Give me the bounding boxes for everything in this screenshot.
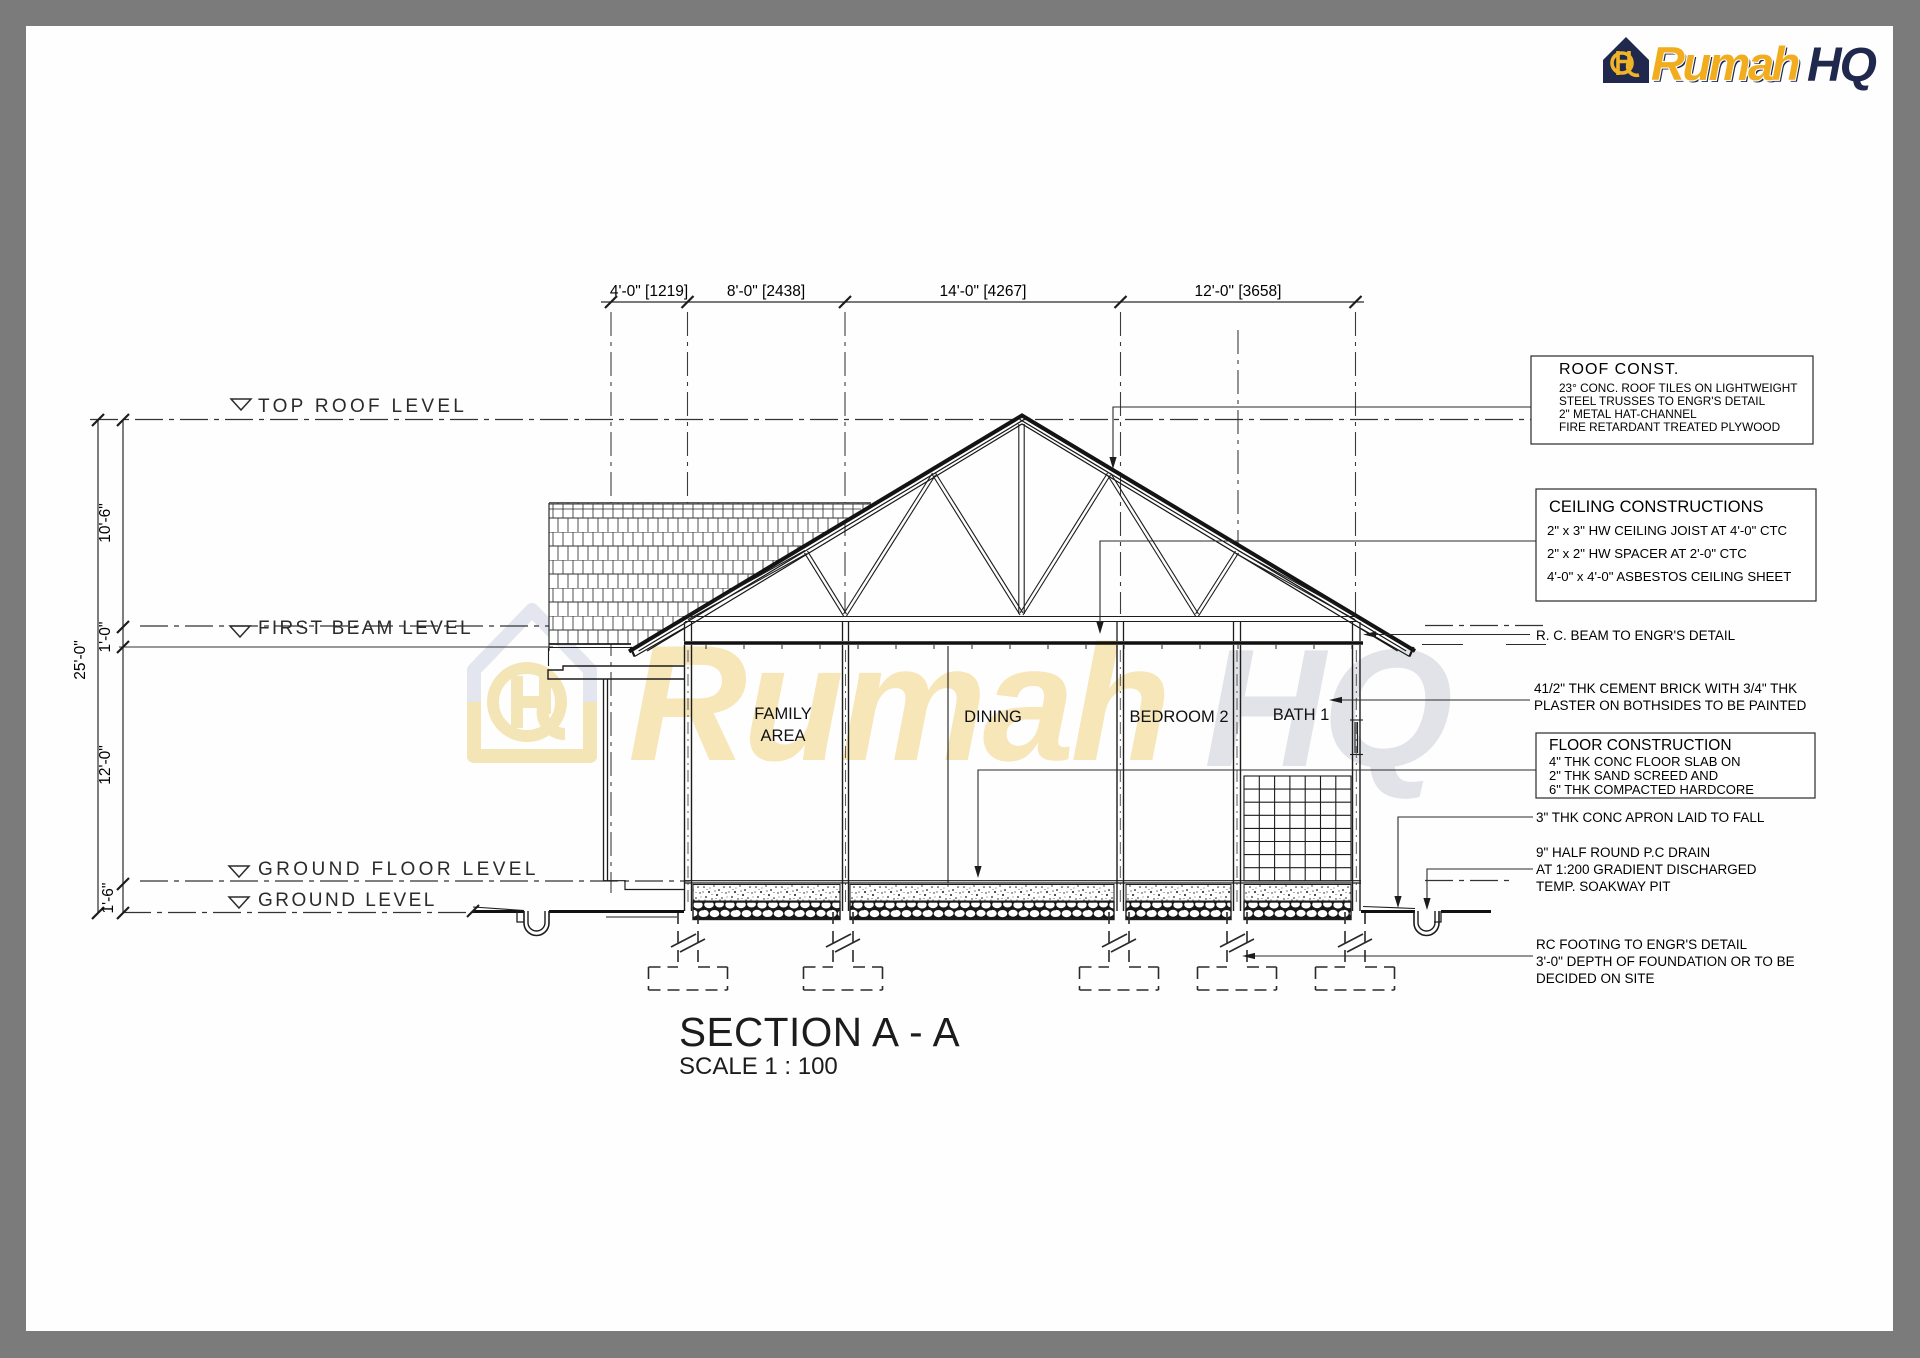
svg-text:1'-0": 1'-0" [97,622,114,653]
svg-text:10'-6": 10'-6" [97,503,114,542]
svg-text:SCALE 1 : 100: SCALE 1 : 100 [679,1053,838,1080]
svg-text:Rumah: Rumah [1651,37,1799,90]
svg-text:3" THK CONC APRON LAID TO FALL: 3" THK CONC APRON LAID TO FALL [1536,810,1765,825]
svg-text:FAMILY: FAMILY [754,705,811,723]
svg-text:23° CONC. ROOF TILES ON LIGHTW: 23° CONC. ROOF TILES ON LIGHTWEIGHT [1559,381,1798,395]
svg-text:PLASTER ON BOTHSIDES TO BE PAI: PLASTER ON BOTHSIDES TO BE PAINTED [1534,698,1807,713]
svg-text:RC FOOTING TO ENGR'S DETAIL: RC FOOTING TO ENGR'S DETAIL [1536,937,1748,952]
svg-text:25'-0": 25'-0" [72,640,89,679]
svg-text:AREA: AREA [761,727,806,745]
svg-text:ROOF CONST.: ROOF CONST. [1559,361,1679,378]
svg-text:9" HALF ROUND P.C DRAIN: 9" HALF ROUND P.C DRAIN [1536,845,1710,860]
svg-text:2" x 2" HW SPACER AT 2'-0" CT: 2" x 2" HW SPACER AT 2'-0" CTC [1547,546,1747,561]
svg-text:CEILING CONSTRUCTIONS: CEILING CONSTRUCTIONS [1549,498,1764,516]
svg-text:FIRST BEAM LEVEL: FIRST BEAM LEVEL [258,618,473,639]
svg-text:6" THK COMPACTED HARDCORE: 6" THK COMPACTED HARDCORE [1549,782,1754,797]
svg-text:TEMP. SOAKWAY PIT: TEMP. SOAKWAY PIT [1536,879,1671,894]
svg-text:4'-0" x 4'-0" ASBESTOS CEILING: 4'-0" x 4'-0" ASBESTOS CEILING SHEET [1547,569,1791,584]
svg-text:Rumah: Rumah [628,611,1167,795]
svg-text:2" THK SAND SCREED AND: 2" THK SAND SCREED AND [1549,768,1718,783]
svg-text:SECTION A - A: SECTION A - A [679,1009,960,1055]
svg-text:GROUND FLOOR LEVEL: GROUND FLOOR LEVEL [258,859,539,880]
svg-text:DINING: DINING [964,708,1022,726]
svg-text:GROUND LEVEL: GROUND LEVEL [258,890,437,911]
svg-text:2" METAL HAT-CHANNEL: 2" METAL HAT-CHANNEL [1559,407,1697,421]
svg-text:3'-0" DEPTH OF FOUNDATION OR T: 3'-0" DEPTH OF FOUNDATION OR TO BE [1536,954,1795,969]
svg-text:2" x 3" HW CEILING JOIST AT 4': 2" x 3" HW CEILING JOIST AT 4'-0" CTC [1547,523,1788,538]
svg-text:R. C. BEAM TO ENGR'S DETAIL: R. C. BEAM TO ENGR'S DETAIL [1536,628,1736,643]
svg-text:AT 1:200 GRADIENT DISCHARGED: AT 1:200 GRADIENT DISCHARGED [1536,862,1757,877]
svg-text:FLOOR CONSTRUCTION: FLOOR CONSTRUCTION [1549,737,1732,754]
svg-text:41/2" THK CEMENT BRICK WITH 3/: 41/2" THK CEMENT BRICK WITH 3/4" THK [1534,681,1797,696]
svg-text:BATH 1: BATH 1 [1273,706,1330,724]
svg-text:DECIDED ON SITE: DECIDED ON SITE [1536,971,1655,986]
svg-text:8'-0" [2438]: 8'-0" [2438] [727,283,805,300]
svg-text:4'-0" [1219]: 4'-0" [1219] [610,283,688,300]
svg-text:STEEL TRUSSES TO ENGR'S DETAIL: STEEL TRUSSES TO ENGR'S DETAIL [1559,394,1766,408]
svg-text:14'-0" [4267]: 14'-0" [4267] [940,283,1027,300]
svg-text:12'-0" [3658]: 12'-0" [3658] [1195,283,1282,300]
svg-text:FIRE RETARDANT TREATED PLYWOOD: FIRE RETARDANT TREATED PLYWOOD [1559,420,1780,434]
svg-text:12'-0": 12'-0" [97,745,114,784]
svg-text:1'-6": 1'-6" [100,883,117,914]
svg-text:TOP ROOF LEVEL: TOP ROOF LEVEL [258,396,467,417]
svg-text:BEDROOM 2: BEDROOM 2 [1129,708,1228,726]
svg-text:4" THK CONC FLOOR SLAB ON: 4" THK CONC FLOOR SLAB ON [1549,754,1740,769]
svg-text:HQ: HQ [1807,39,1877,92]
